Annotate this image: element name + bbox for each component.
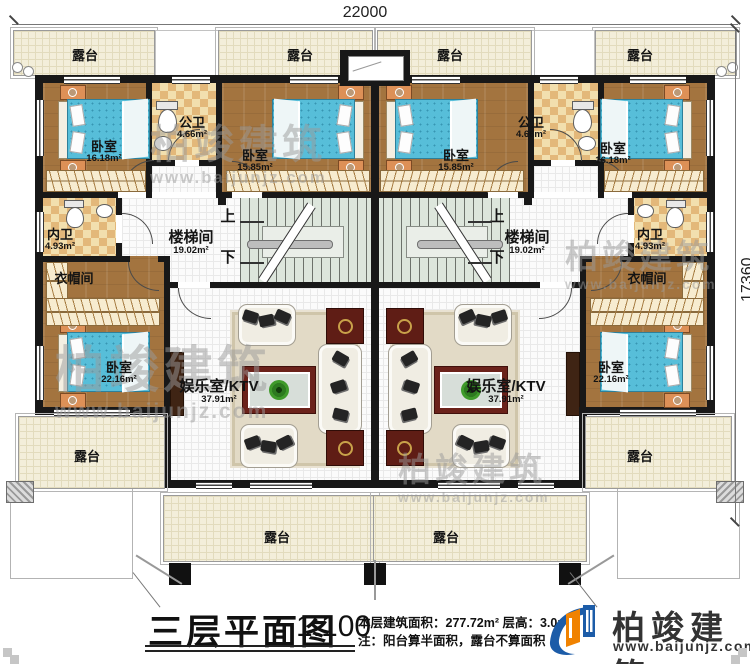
room-name: 卧室 xyxy=(106,360,132,375)
room-label-terrace: 露台 xyxy=(287,49,313,63)
room-label-ktv: 娱乐室/KTV 37.91m² xyxy=(179,379,258,405)
note-area-line: 本层建筑面积：277.72m² 层高：3.0m xyxy=(358,614,568,632)
room-label-public-bath: 公卫 4.66m² xyxy=(177,116,207,140)
room-label-terrace: 露台 xyxy=(264,531,290,545)
room-label-public-bath: 公卫 4.66m² xyxy=(516,116,546,140)
room-area: 37.91m² xyxy=(179,395,258,405)
brand-url: www.baijunjz.com xyxy=(613,638,750,654)
brand-logo-svg xyxy=(540,596,610,660)
room-area: 22.16m² xyxy=(101,375,136,385)
room-area: 16.18m² xyxy=(595,156,630,166)
watermark: 柏竣建筑 www.baijunjz.com xyxy=(55,330,271,424)
room-area: 4.66m² xyxy=(516,130,546,140)
room-label-ktv: 娱乐室/KTV 37.91m² xyxy=(466,379,545,405)
room-label-stairwell: 楼梯间 19.02m² xyxy=(504,230,549,256)
stair-down-label: 下 xyxy=(489,250,504,266)
room-name: 卧室 xyxy=(242,148,268,163)
room-name: 娱乐室/KTV xyxy=(466,378,545,395)
room-label-cloakroom: 衣帽间 xyxy=(54,272,93,286)
stair-up-label: 上 xyxy=(489,209,504,225)
room-label-terrace: 露台 xyxy=(72,49,98,63)
floor-plan-drawing: 柏竣建筑 www.baijunjz.com 柏竣建筑 www.baijunjz.… xyxy=(0,0,750,664)
room-name: 内卫 xyxy=(637,227,663,242)
room-label-bedroom: 卧室 16.18m² xyxy=(595,142,630,166)
room-label-cloakroom: 衣帽间 xyxy=(627,272,666,286)
room-name: 卧室 xyxy=(598,360,624,375)
title-underline xyxy=(145,650,355,652)
watermark-url: www.baijunjz.com xyxy=(398,489,550,505)
down-tick xyxy=(468,262,492,264)
room-name: 娱乐室/KTV xyxy=(179,378,258,395)
eave-line xyxy=(374,560,376,600)
down-tick xyxy=(240,262,264,264)
watermark: 柏竣建筑 www.baijunjz.com xyxy=(398,443,550,505)
room-name: 楼梯间 xyxy=(504,229,549,246)
room-name: 楼梯间 xyxy=(168,229,213,246)
watermark-text: 柏竣建筑 xyxy=(398,451,546,488)
room-area: 15.85m² xyxy=(438,163,473,173)
room-label-terrace: 露台 xyxy=(74,450,100,464)
room-label-terrace: 露台 xyxy=(433,531,459,545)
room-label-bedroom: 卧室 15.85m² xyxy=(237,149,272,173)
room-name: 内卫 xyxy=(47,227,73,242)
room-label-terrace: 露台 xyxy=(627,49,653,63)
room-area: 37.91m² xyxy=(466,395,545,405)
room-area: 19.02m² xyxy=(168,246,213,256)
room-label-bedroom: 卧室 16.18m² xyxy=(86,140,121,164)
dimension-width: 22000 xyxy=(343,4,388,22)
room-area: 16.18m² xyxy=(86,154,121,164)
room-label-terrace: 露台 xyxy=(437,49,463,63)
corner-mark xyxy=(10,655,19,664)
dimension-height: 17360 xyxy=(739,258,750,303)
brand-name: 柏竣建筑 xyxy=(612,601,750,664)
room-area: 15.85m² xyxy=(237,163,272,173)
room-label-private-bath: 内卫 4.93m² xyxy=(635,228,665,252)
plan-notes: 本层建筑面积：277.72m² 层高：3.0m 注：阳台算半面积，露台不算面积 xyxy=(358,614,568,650)
room-label-private-bath: 内卫 4.93m² xyxy=(45,228,75,252)
stair-up-label: 上 xyxy=(220,209,235,225)
room-area: 19.02m² xyxy=(504,246,549,256)
up-tick xyxy=(468,221,492,223)
room-name: 公卫 xyxy=(179,115,205,130)
wall xyxy=(371,75,379,488)
room-label-bedroom: 卧室 15.85m² xyxy=(438,149,473,173)
room-label-stairwell: 楼梯间 19.02m² xyxy=(168,230,213,256)
room-label-terrace: 露台 xyxy=(627,450,653,464)
note-remark-line: 注：阳台算半面积，露台不算面积 xyxy=(358,632,568,650)
dimension-line xyxy=(12,24,738,25)
room-area: 4.93m² xyxy=(635,242,665,252)
corner-mark xyxy=(731,655,740,664)
room-name: 卧室 xyxy=(600,141,626,156)
room-name: 卧室 xyxy=(443,148,469,163)
stair-down-label: 下 xyxy=(220,250,235,266)
room-name: 卧室 xyxy=(91,139,117,154)
room-name: 公卫 xyxy=(518,115,544,130)
room-area: 22.16m² xyxy=(593,375,628,385)
room-area: 4.66m² xyxy=(177,130,207,140)
room-label-bedroom: 卧室 22.16m² xyxy=(593,361,628,385)
room-label-bedroom: 卧室 22.16m² xyxy=(101,361,136,385)
dimension-line xyxy=(735,28,736,523)
room-area: 4.93m² xyxy=(45,242,75,252)
brand-logo-icon xyxy=(540,596,610,660)
leader-line xyxy=(133,572,161,607)
title-underline xyxy=(145,645,355,647)
up-tick xyxy=(240,221,264,223)
